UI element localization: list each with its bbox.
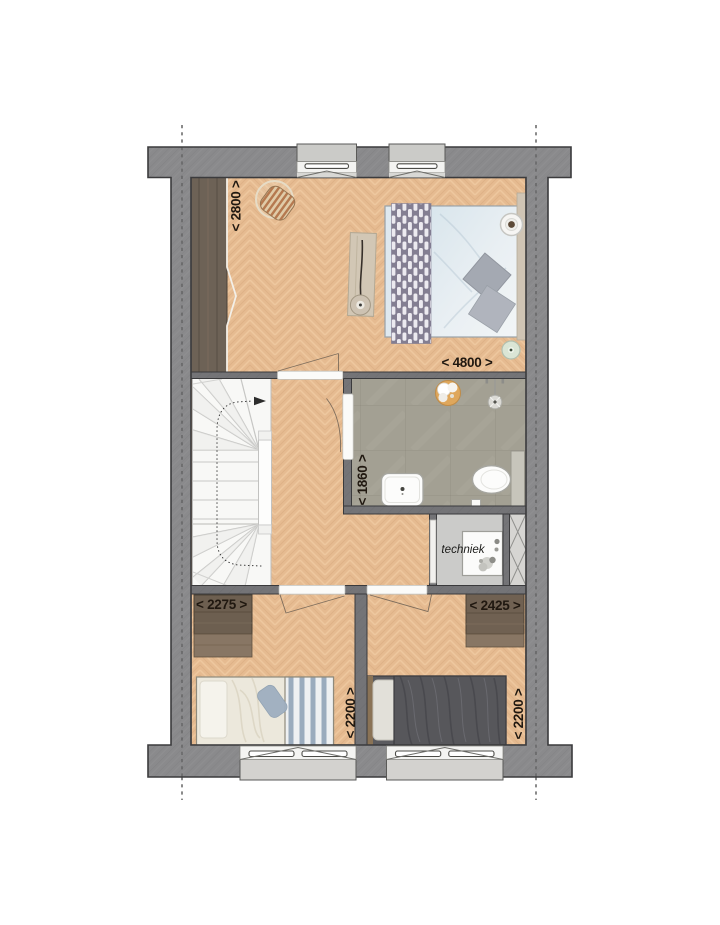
svg-text:< 2200 >: < 2200 > <box>343 687 358 738</box>
svg-text:< 2425 >: < 2425 > <box>470 598 521 613</box>
svg-text:< 2200 >: < 2200 > <box>511 688 526 739</box>
svg-text:techniek: techniek <box>441 543 485 556</box>
svg-text:< 2275 >: < 2275 > <box>196 597 247 612</box>
svg-text:< 1860 >: < 1860 > <box>355 454 370 505</box>
svg-text:< 2800 >: < 2800 > <box>229 180 244 231</box>
svg-text:< 4800 >: < 4800 > <box>442 355 493 370</box>
